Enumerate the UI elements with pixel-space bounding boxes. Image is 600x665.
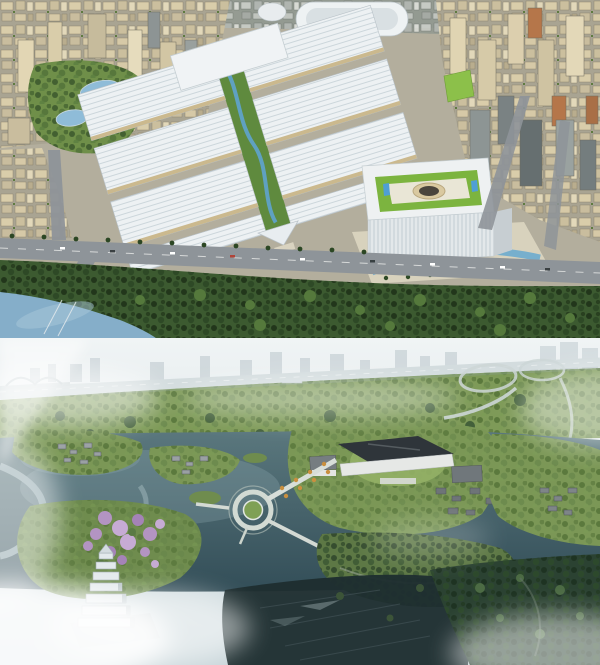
render-lake-park	[0, 338, 600, 665]
cube-side-face	[494, 208, 512, 256]
main-island	[288, 422, 499, 535]
dark-terraced-plaza	[222, 575, 468, 665]
render-collage	[0, 0, 600, 665]
green-roof-building	[444, 70, 474, 102]
render-exhibition-center	[0, 0, 600, 338]
courtyard-pool-west	[383, 183, 390, 196]
courtyard-oval-center	[419, 186, 439, 196]
courtyard-pool-east	[471, 180, 478, 192]
